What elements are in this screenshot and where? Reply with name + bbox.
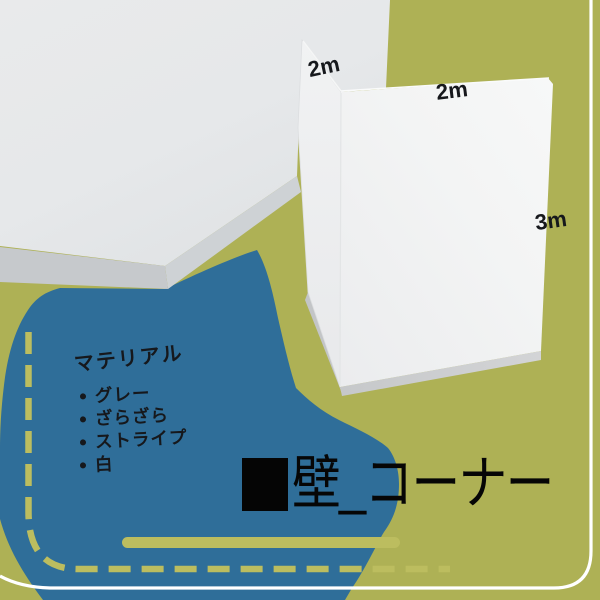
bullet-dot-icon — [80, 393, 86, 399]
title-square-icon — [242, 458, 288, 511]
materials-note: マテリアル グレー ざらざら ストライプ 白 — [72, 348, 188, 477]
material-item-label: 白 — [94, 451, 114, 477]
product-title-text: 壁_コーナー — [292, 455, 553, 513]
materials-list: グレー ざらざら ストライプ 白 — [72, 385, 188, 477]
wall-front-face — [340, 78, 553, 387]
product-title: 壁_コーナー — [242, 455, 600, 513]
scene-canvas: 2m 2m 3m マテリアル グレー ざらざら ストライプ 白 — [0, 0, 600, 600]
bullet-dot-icon — [80, 439, 86, 445]
material-item: 白 — [71, 448, 188, 477]
bullet-dot-icon — [80, 416, 86, 422]
dimension-label-front: 2m — [435, 78, 469, 104]
accent-bar — [122, 537, 400, 548]
corner-wall — [298, 40, 553, 396]
bullet-dot-icon — [80, 462, 86, 468]
dimension-label-height: 3m — [534, 208, 569, 234]
